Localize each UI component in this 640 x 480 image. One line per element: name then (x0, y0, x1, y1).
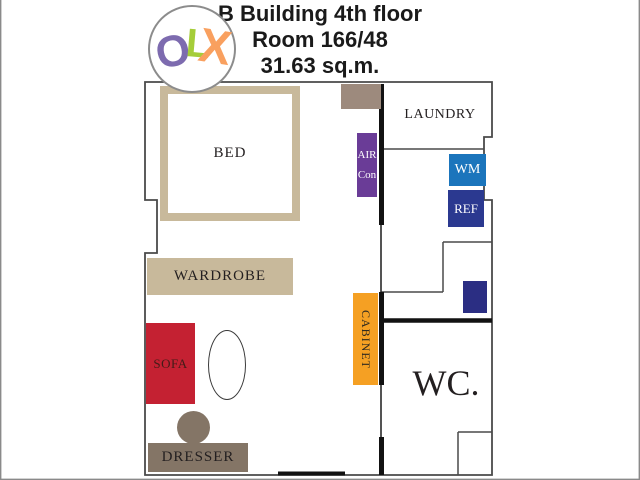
wardrobe-label: WARDROBE (174, 268, 266, 285)
sofa-label: SOFA (153, 356, 187, 372)
walls-drawing (0, 0, 640, 480)
entrance-door-panel (341, 84, 381, 109)
bed-label: BED (168, 94, 292, 213)
refrigerator-label: REF (454, 201, 478, 217)
olx-logo: O L X (148, 5, 236, 93)
bed: BED (160, 86, 300, 221)
dresser: DRESSER (148, 443, 248, 472)
cabinet: CABINET (353, 293, 378, 385)
refrigerator: REF (448, 190, 484, 227)
storage-box (463, 281, 487, 313)
oval-chair (208, 330, 246, 400)
air-conditioner: AIR Con (357, 133, 377, 197)
round-stool (177, 411, 210, 444)
olx-letter-x: X (195, 22, 234, 74)
floorplan-image: B Building 4th floor Room 166/48 31.63 s… (0, 0, 640, 480)
aircon-label-line1: AIR (358, 150, 377, 161)
sofa: SOFA (146, 323, 195, 404)
washing-machine-label: WM (455, 162, 481, 178)
dresser-label: DRESSER (162, 449, 235, 466)
cabinet-label: CABINET (358, 310, 373, 369)
wardrobe: WARDROBE (147, 258, 293, 295)
aircon-label-line2: Con (358, 170, 376, 181)
washing-machine: WM (449, 154, 486, 186)
